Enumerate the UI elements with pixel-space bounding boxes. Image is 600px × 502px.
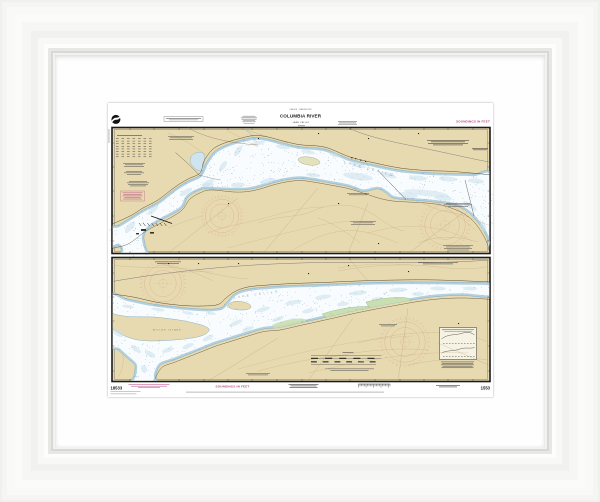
svg-text:OREGON - WASHINGTON: OREGON - WASHINGTON: [289, 108, 311, 111]
svg-text:COLUMBIA RIVER: COLUMBIA RIVER: [279, 114, 321, 119]
svg-text:LAKE CELILO: LAKE CELILO: [292, 121, 309, 124]
svg-text:18533: 18533: [110, 386, 122, 391]
svg-text:SOUNDINGS IN FEET: SOUNDINGS IN FEET: [456, 120, 490, 124]
svg-text:MILLER ISLAND: MILLER ISLAND: [153, 329, 182, 332]
svg-text:SOUNDINGS IN FEET: SOUNDINGS IN FEET: [215, 384, 249, 388]
svg-text:1553: 1553: [480, 386, 490, 391]
